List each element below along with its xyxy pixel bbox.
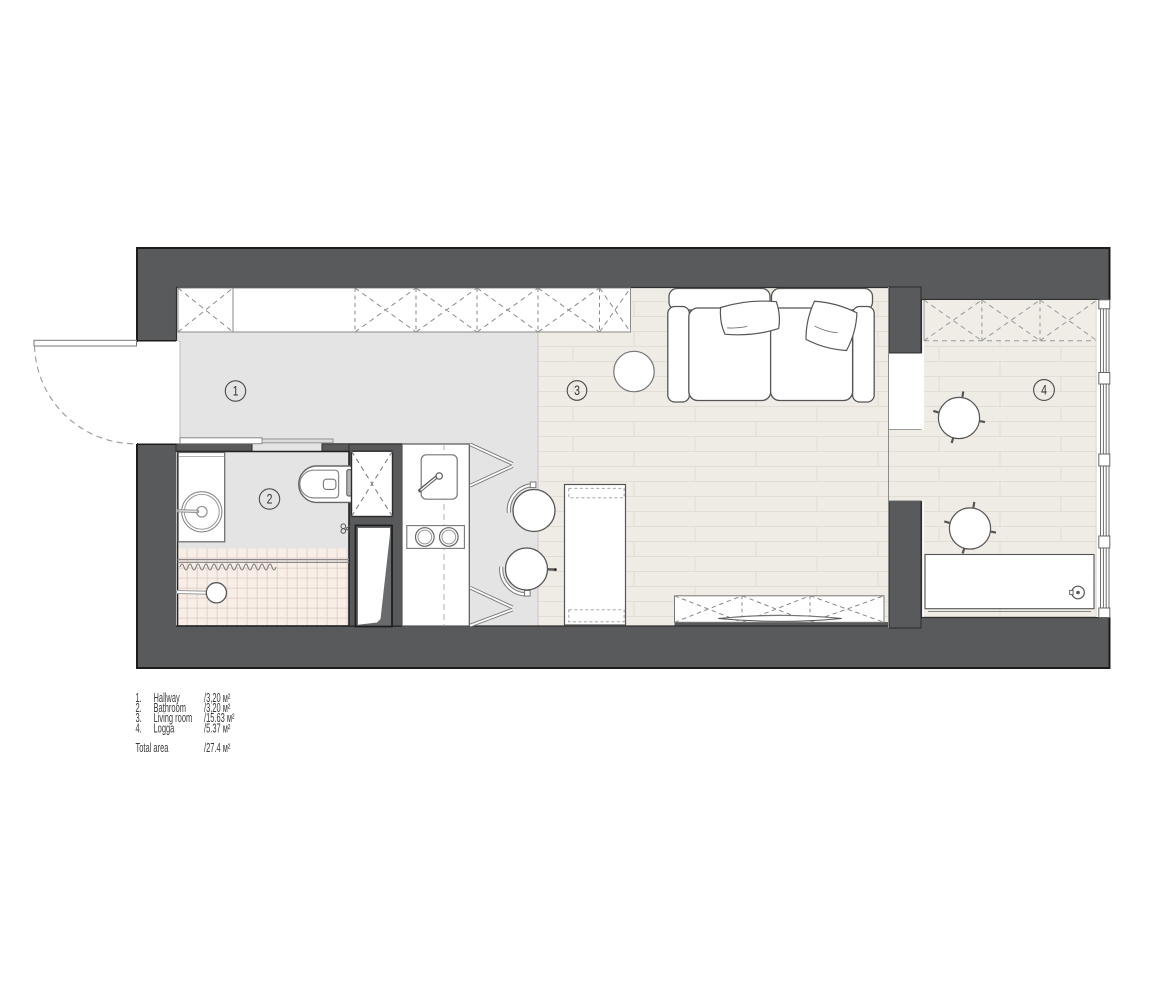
svg-text:4: 4: [1041, 382, 1047, 398]
svg-text:1: 1: [233, 383, 239, 399]
svg-text:3: 3: [574, 383, 580, 399]
svg-text:/5.37 м²: /5.37 м²: [204, 723, 231, 736]
svg-text:Total area: Total area: [136, 742, 169, 755]
svg-text:Logga: Logga: [154, 723, 175, 736]
svg-text:4.: 4.: [136, 723, 142, 736]
svg-text:/27.4 м²: /27.4 м²: [204, 742, 231, 755]
svg-text:2: 2: [267, 491, 273, 507]
